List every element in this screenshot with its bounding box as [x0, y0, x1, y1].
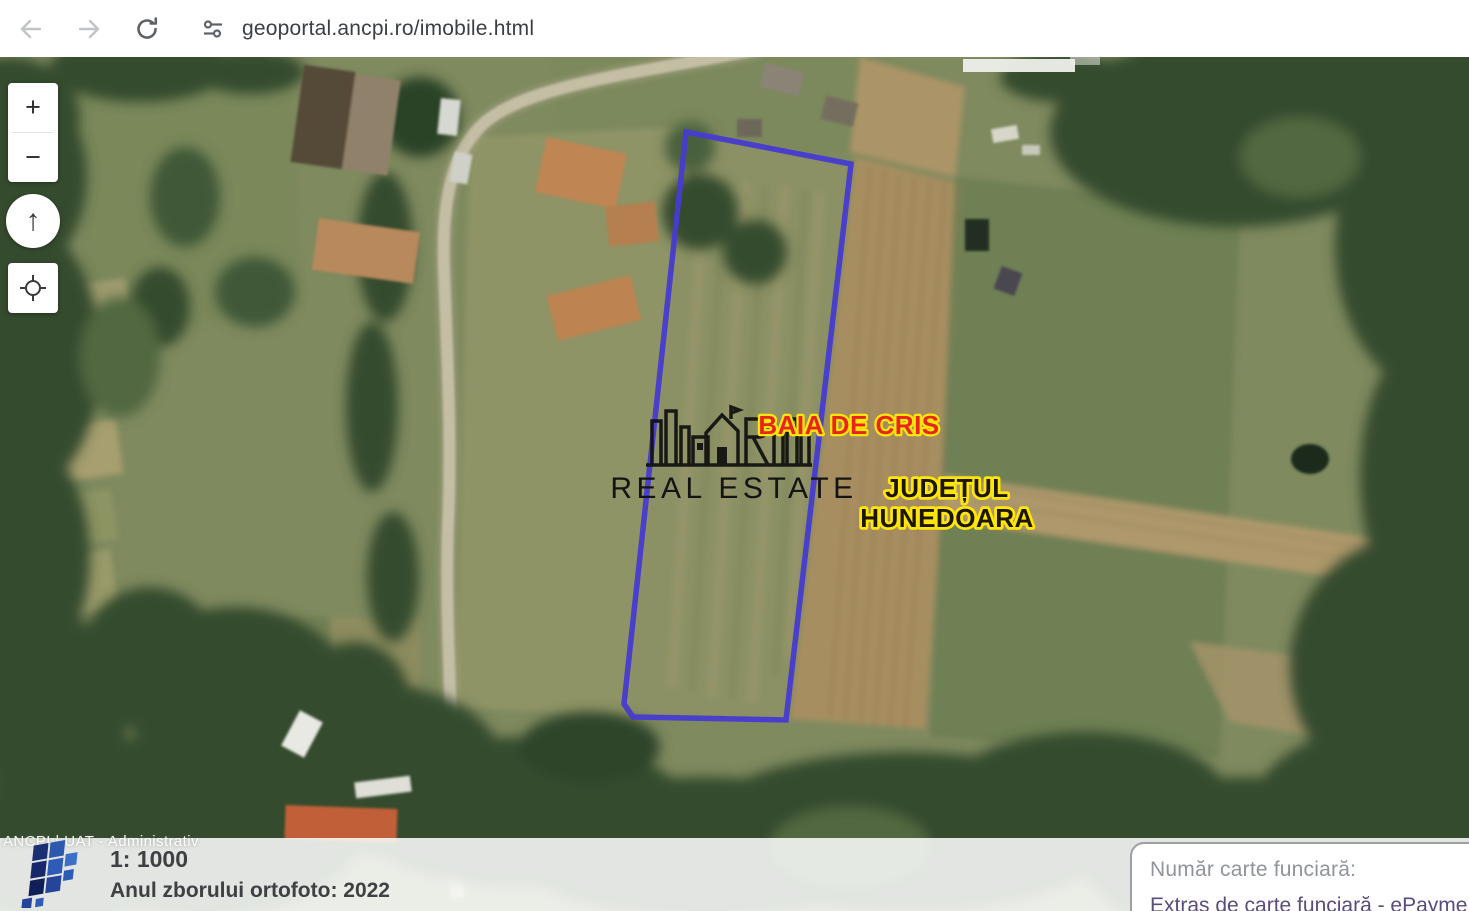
- back-icon[interactable]: [16, 14, 46, 44]
- zoom-control: + −: [8, 83, 58, 182]
- ortofoto-year: Anul zborului ortofoto: 2022: [110, 879, 390, 903]
- zoom-in-button[interactable]: +: [8, 83, 58, 132]
- land-book-number-label: Număr carte funciară:: [1150, 858, 1469, 882]
- map-viewport[interactable]: REAL ESTATE BAIA DE CRIS JUDEȚUL HUNEDOA…: [0, 57, 1469, 911]
- site-settings-icon[interactable]: [198, 14, 228, 44]
- address-bar-url[interactable]: geoportal.ancpi.ro/imobile.html: [242, 17, 534, 41]
- reload-icon[interactable]: [132, 14, 162, 44]
- crosshair-icon: [19, 274, 47, 302]
- land-book-extract-link[interactable]: Extras de carte funciară - ePayme: [1150, 894, 1467, 911]
- map-scale: 1: 1000: [110, 846, 188, 873]
- county-label-line2: HUNEDOARA: [860, 503, 1034, 533]
- north-arrow-button[interactable]: ↑: [6, 194, 60, 248]
- forward-icon[interactable]: [74, 14, 104, 44]
- county-label-line1: JUDEȚUL: [885, 473, 1008, 503]
- land-book-panel: Număr carte funciară: Extras de carte fu…: [1130, 842, 1469, 911]
- watermark-text: REAL ESTATE: [610, 472, 857, 505]
- locate-button[interactable]: [8, 263, 58, 313]
- zoom-out-button[interactable]: −: [8, 133, 58, 182]
- map-overlay: REAL ESTATE BAIA DE CRIS JUDEȚUL HUNEDOA…: [0, 57, 1469, 911]
- browser-toolbar: geoportal.ancpi.ro/imobile.html: [0, 0, 1469, 57]
- ancpi-logo-icon: [6, 840, 102, 911]
- locality-label: BAIA DE CRIS: [758, 410, 939, 440]
